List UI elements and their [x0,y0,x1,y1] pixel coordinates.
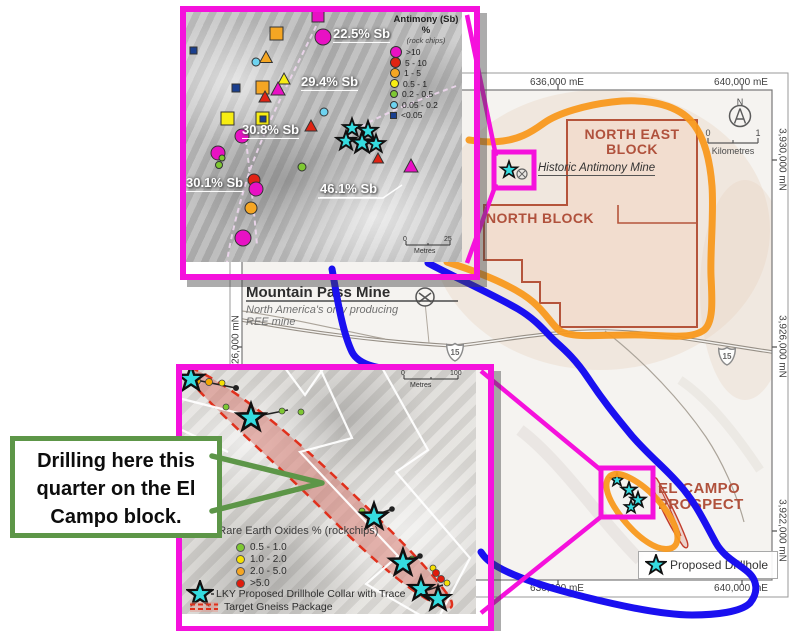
map-figure: 636,000 mE 640,000 mE 636,000 mE 640,000… [0,0,800,631]
legend-item: 5 - 10 [390,58,462,69]
north-block-label: NORTH BLOCK [486,211,594,226]
gneiss-legend-row: Target Gneiss Package [190,601,333,613]
grid-label-top-left: 636,000 mE [517,77,597,88]
inset-scale-unit: Metres [410,382,431,389]
antimony-legend-subtitle: (rock chips) [390,36,462,45]
drillhole-legend-label: LKY Proposed Drillhole Collar with Trace [216,588,405,600]
sample-grade-label: 29.4% Sb [301,74,358,91]
proposed-drillhole-star-icon [645,554,667,576]
grid-label-bottom-right: 640,000 mE [701,583,781,594]
legend-item: <0.05 [390,110,462,121]
highway-15-label: 15 [719,352,735,361]
mountain-pass-subtitle: North America's only producing REE mine [246,304,398,328]
scale-unit-label: Kilometres [703,146,763,156]
grid-label-right-bottom: 3,922,000 mN [777,491,788,571]
historic-antimony-mine-label: Historic Antimony Mine [538,162,655,176]
callout-line2: quarter on the El [15,475,217,503]
inset-scale-zero: 0 [403,236,407,243]
el-campo-prospect-label: EL CAMPO PROSPECT [658,481,744,513]
drilling-callout: Drilling here this quarter on the El Cam… [10,436,222,538]
legend-item: >10 [390,47,462,58]
reo-inset: 0 100 Metres Total Rare Earth Oxides % (… [176,364,494,631]
proposed-drillhole-star-cluster [337,119,385,152]
antimony-inset: 22.5% Sb 29.4% Sb 30.8% Sb 30.1% Sb 46.1… [180,6,480,280]
antimony-legend-title: Antimony (Sb) % [390,14,462,36]
sample-grade-label: 22.5% Sb [333,26,390,43]
grid-label-top-right: 640,000 mE [701,77,781,88]
scale-zero-label: 0 [704,128,712,138]
inset-scale-max: 25 [444,236,452,243]
grid-label-bottom-left: 636,000 mE [517,583,597,594]
sample-grade-label: 30.1% Sb [186,175,243,192]
scale-one-label: 1 [754,128,762,138]
legend-item: 1.0 - 2.0 [236,553,287,565]
grid-label-right-mid: 3,926,000 mN [777,307,788,387]
gneiss-swatch-icon [190,602,218,612]
legend-item: 1 - 5 [390,68,462,79]
mine-icon [416,288,434,306]
inset-scale-zero: 0 [401,370,405,377]
north-east-block-label: NORTH EAST BLOCK [552,127,712,157]
antimony-legend: Antimony (Sb) % (rock chips) >10 5 - 10 … [390,14,462,121]
gneiss-legend-label: Target Gneiss Package [224,601,333,613]
sample-grade-label: 46.1% Sb [320,181,377,198]
rock-chip-sample-symbols [190,12,418,246]
callout-line1: Drilling here this [15,447,217,475]
legend-item: 0.5 - 1 [390,79,462,90]
callout-line3: Campo block. [15,503,217,531]
mountain-pass-title: Mountain Pass Mine [246,284,398,301]
proposed-drillhole-legend: Proposed Drillhole [638,551,778,579]
proposed-drillhole-label: Proposed Drillhole [670,558,768,572]
sample-grade-label: 30.8% Sb [242,122,299,139]
inset-scale-unit: Metres [414,248,435,255]
legend-item: 0.2 - 0.5 [390,89,462,100]
legend-item: 0.5 - 1.0 [236,541,287,553]
highway-15-label: 15 [447,348,463,357]
legend-item: 2.0 - 5.0 [236,565,287,577]
inset-scale-max: 100 [450,370,462,377]
grid-label-right-top: 3,930,000 mN [777,120,788,200]
compass-north-label: N [736,97,744,107]
mountain-pass-label-group: Mountain Pass Mine North America's only … [246,284,398,328]
legend-item: 0.05 - 0.2 [390,100,462,111]
